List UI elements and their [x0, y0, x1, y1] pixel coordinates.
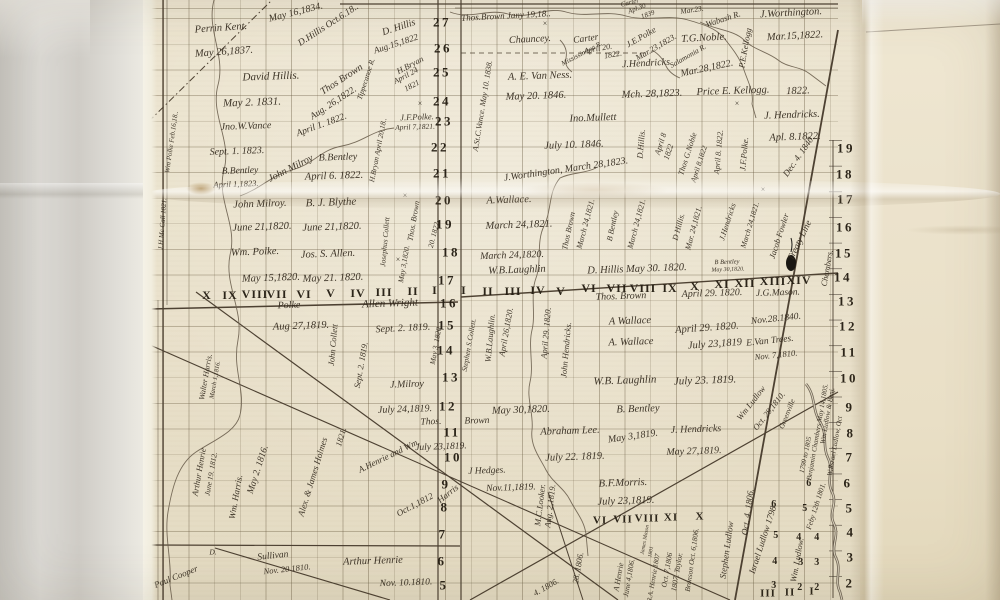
- range-numeral: VII: [266, 288, 287, 300]
- map-label: Abraham Lee.: [540, 426, 600, 439]
- map-label: Israel Ludlow, Oct: [828, 416, 844, 469]
- map-label: J.F.Polke.: [400, 112, 434, 122]
- map-label: H.Bryan April 20,18..: [368, 117, 388, 183]
- grid-number: 25: [433, 66, 451, 79]
- page-margin-band: [0, 0, 143, 600]
- map-label: Stephen S.Collett.: [461, 318, 478, 372]
- range-numeral: X: [696, 512, 705, 523]
- map-label: April 7,1821.: [395, 123, 435, 132]
- map-label: July 10. 1846.: [544, 140, 604, 153]
- map-label: Nov.28.1840.: [751, 313, 802, 328]
- range-numeral: VIII: [630, 282, 657, 294]
- range-numeral: XIII: [760, 275, 787, 287]
- map-label: Mar.23.: [680, 5, 704, 16]
- map-label: May 21. 1820.: [302, 273, 363, 286]
- map-label: May 30,1820.: [492, 405, 550, 418]
- survey-x-mark: ×: [396, 256, 401, 264]
- map-label: 1822: [663, 143, 676, 161]
- map-label: Chauncey.: [509, 34, 551, 46]
- grid-number: 19: [436, 218, 454, 231]
- range-numeral: XI: [714, 278, 729, 290]
- map-label: Oct. 4. 1806.: [740, 488, 755, 536]
- map-label: Aug.15,1822: [373, 33, 420, 56]
- grid-number: 24: [433, 95, 451, 108]
- map-label: April 29. 1820.: [540, 307, 553, 359]
- range-numeral: II: [482, 285, 493, 297]
- range-numeral: XIV: [786, 274, 811, 286]
- grid-number: 2: [814, 583, 822, 593]
- map-label: 4. 1806.: [532, 576, 560, 597]
- map-label: Sept. 1. 1823.: [209, 146, 264, 158]
- map-label: B Bentley: [606, 210, 620, 242]
- map-label: Perrin Kent.: [194, 22, 247, 36]
- map-label: J Hedges.: [468, 467, 506, 478]
- range-numeral: XI: [664, 513, 678, 524]
- map-label: Sept. 2. 1819.: [375, 323, 430, 336]
- range-numeral: VIII: [242, 288, 269, 300]
- map-label: D.: [209, 548, 216, 556]
- range-numeral: VIII: [635, 514, 660, 525]
- map-label: Aug 27,1819.: [273, 321, 330, 333]
- map-label: B.Bentley: [319, 152, 358, 163]
- map-label: March 24,1821.: [485, 220, 552, 233]
- range-numeral: VII: [606, 282, 627, 294]
- top-right-fold-highlight: [862, 0, 1000, 26]
- grid-number: 9: [442, 478, 451, 491]
- range-numeral: VI: [593, 516, 607, 527]
- range-numeral: IX: [222, 289, 237, 301]
- map-label: 1821: [403, 79, 421, 94]
- map-label: Treaty Line: [787, 220, 814, 263]
- grid-number: 12: [439, 400, 457, 413]
- map-label: John Collett: [327, 324, 339, 366]
- map-label: Jos. S. Allen.: [301, 249, 356, 261]
- map-label: Allen Wright: [362, 298, 418, 311]
- map-label: Mch. 28,1823.: [621, 89, 682, 102]
- map-label: J.Worthington.: [760, 7, 822, 21]
- map-label: W.B.Laughlin.: [484, 313, 497, 362]
- survey-x-mark: ×: [418, 100, 423, 108]
- grid-number: 3: [814, 558, 822, 568]
- map-label: June 21,1820.: [302, 222, 362, 235]
- range-numeral: VI: [296, 288, 311, 300]
- grid-number: 14: [437, 344, 455, 357]
- range-numeral: X: [202, 289, 212, 301]
- map-label: Sept. 2. 1819.: [353, 341, 369, 388]
- grid-number: 7: [439, 528, 448, 541]
- page-margin-highlight: [0, 0, 90, 58]
- map-label: May 20. 1846.: [505, 91, 566, 104]
- map-label: J.G.Mason.: [756, 288, 800, 299]
- grid-number: 22: [431, 141, 449, 154]
- map-label: Price E. Kellogg.: [696, 85, 769, 98]
- grid-number: 27: [433, 16, 451, 29]
- grid-number: 16: [440, 297, 458, 310]
- survey-x-mark: ×: [543, 20, 548, 28]
- map-label: W.B.Laughlin: [488, 265, 546, 277]
- range-numeral: III: [760, 589, 776, 600]
- grid-number: 23: [435, 115, 453, 128]
- map-label: Wm. Polke.: [231, 247, 279, 259]
- grid-number: 26: [434, 42, 452, 55]
- grid-number: 5: [802, 504, 810, 514]
- map-label: May 15,1820.: [242, 273, 300, 286]
- map-label: D Hillis.: [672, 213, 687, 242]
- map-label: May 16,1834.: [268, 1, 324, 24]
- grid-number: 5: [440, 579, 449, 592]
- map-label: July 24,1819.: [378, 404, 432, 416]
- grid-number: 8: [441, 501, 450, 514]
- map-label: Alex. & James Holmes: [297, 436, 330, 517]
- map-label: Brown: [464, 417, 489, 427]
- map-label: P.E.Kellogg: [737, 27, 752, 68]
- map-label: Chambers.: [820, 249, 835, 287]
- range-numeral: I: [432, 284, 438, 296]
- map-label: A.St.C.Vance. May 10. 1838.: [472, 60, 494, 152]
- grid-number: 6: [438, 555, 447, 568]
- map-label: A. Wallace: [608, 337, 653, 349]
- map-label: E.Van Trees.: [746, 335, 794, 349]
- grid-number: 13: [442, 371, 460, 384]
- vertical-fold-crease: [850, 0, 884, 600]
- grid-number: 3: [798, 558, 806, 568]
- map-label: B. Bentley: [616, 404, 659, 416]
- map-label: D.Hillis.: [635, 129, 646, 159]
- map-label: John Hendricks.: [559, 322, 572, 378]
- range-numeral: V: [326, 287, 336, 299]
- grid-number: 4: [796, 533, 804, 543]
- map-label: Wm. Harris.: [228, 474, 245, 520]
- map-label: July 23. 1819.: [674, 374, 737, 387]
- range-numeral: IV: [350, 287, 365, 299]
- map-label: Polke: [277, 301, 300, 312]
- map-label: May 2. 1816.: [247, 445, 272, 496]
- map-label: 1822.: [786, 86, 810, 97]
- range-numeral: II: [785, 588, 796, 599]
- grid-number: 4: [772, 557, 780, 567]
- map-label: B Bentley: [714, 259, 739, 266]
- grid-number: 11: [443, 426, 460, 439]
- map-label: May 30,1820.: [711, 266, 744, 273]
- map-label: June 21,1820.: [232, 222, 292, 235]
- grid-number: 18: [442, 246, 460, 259]
- map-label: Nov. 10.1810.: [380, 578, 433, 589]
- map-label: B.Bentley: [222, 167, 259, 178]
- map-label: R.A. Henrie 1807: [646, 553, 661, 600]
- map-label: J. Hendricks: [671, 424, 722, 436]
- page-margin-crease: [0, 183, 143, 199]
- map-label: Bronson Oct. 6,1806.: [684, 528, 700, 593]
- map-label: Mar. 24,1821.: [684, 205, 703, 250]
- map-label: Oct.1,1812: [395, 492, 435, 519]
- map-label: Ino.Mullett: [569, 113, 616, 125]
- map-label: J.H.Mc Call 1821.: [158, 198, 169, 250]
- map-label: Nov. 20 1810.: [263, 562, 311, 575]
- map-label: J.Hendricks: [622, 58, 671, 71]
- map-label: May 3,1819.: [607, 429, 658, 446]
- map-label: April 26,1820.: [498, 307, 515, 357]
- map-label: May 27,1819.: [666, 446, 722, 458]
- map-label: W.P.: [827, 463, 836, 476]
- range-numeral: V: [556, 285, 566, 297]
- map-label: April 29. 1820.: [675, 322, 739, 337]
- paper-stain: [520, 182, 670, 198]
- map-label: Stephen Ludlow: [719, 521, 736, 579]
- map-label: Mar.28,1822.: [680, 59, 735, 80]
- map-label: May 2. 1831.: [223, 96, 281, 109]
- map-label: July 22. 1819.: [545, 452, 605, 465]
- grid-number: 4: [814, 533, 822, 543]
- grid-number: 2: [797, 583, 805, 593]
- map-label: A.Henrie and Wm.: [357, 437, 421, 474]
- range-numeral: I: [461, 284, 467, 296]
- survey-x-mark: ×: [735, 100, 740, 108]
- map-label: Josephus Collett: [379, 217, 391, 267]
- range-numeral: VII: [613, 515, 633, 526]
- map-label: J.Milroy: [390, 379, 424, 390]
- map-label: Wm Polke Feb.16,18..: [164, 111, 180, 174]
- grid-number: 17: [438, 274, 456, 287]
- grid-number: 15: [438, 319, 456, 332]
- range-numeral: X: [690, 280, 700, 292]
- map-label: 1839: [640, 9, 656, 20]
- range-numeral: III: [504, 285, 521, 297]
- map-label: Jno.W.Vance: [220, 121, 271, 133]
- map-label: A Wallace: [609, 316, 652, 328]
- map-label: July 23,1819: [688, 338, 743, 352]
- map-label: Sullivan: [257, 551, 289, 564]
- map-label: July 23,1819.: [597, 496, 654, 508]
- map-label: B.F.Morris.: [599, 478, 648, 490]
- map-label: Thos.: [420, 418, 441, 428]
- map-label: Paul Cooper: [153, 564, 199, 590]
- map-label: 1822.: [603, 49, 622, 60]
- range-numeral: VI: [581, 282, 596, 294]
- map-label: Wabash R.: [705, 9, 742, 28]
- map-label: Thos.Brown Jany 19,18..: [461, 9, 551, 23]
- range-numeral: III: [375, 286, 392, 298]
- map-label: April 8. 1822.: [713, 130, 725, 175]
- grid-number: 10: [444, 451, 462, 464]
- map-label: W.B. Laughlin: [593, 374, 656, 387]
- range-numeral: I: [809, 587, 814, 598]
- map-label: Jacob Fowler: [768, 212, 791, 259]
- map-label: 28. 1806.: [571, 552, 585, 585]
- range-numeral: XII: [734, 277, 755, 289]
- range-numeral: IX: [662, 282, 677, 294]
- map-label: David Hillis.: [242, 71, 299, 84]
- map-label: Nov. 7,1810.: [754, 349, 797, 362]
- map-label: J.F.Polke.: [738, 137, 749, 171]
- map-label: Nov.11,1819.: [486, 483, 536, 494]
- grid-number: 5: [773, 531, 781, 541]
- map-label: J. Hendricks.: [764, 110, 820, 122]
- map-label: D. Hillis May 30. 1820.: [587, 263, 687, 277]
- map-sheet-edge: [143, 0, 157, 600]
- grid-number: 6: [806, 479, 814, 489]
- map-label: May 26,1837.: [195, 46, 254, 61]
- scanned-plat-map: May 16,1834.Perrin Kent.D.Hillis Oct.6.1…: [0, 0, 1000, 600]
- map-label: March 24,1820.: [480, 250, 544, 262]
- grid-number: 21: [433, 167, 451, 180]
- map-label: A. E. Van Ness.: [508, 71, 572, 84]
- map-label: May 3,1820.: [397, 245, 411, 283]
- map-label: Arthur Henrie: [343, 556, 403, 569]
- grid-number: 6: [771, 500, 779, 510]
- range-numeral: II: [407, 285, 418, 297]
- paper-stain: [186, 182, 216, 195]
- map-label: 1821.: [334, 427, 348, 448]
- map-label: Mar.15,1822.: [767, 30, 824, 43]
- range-numeral: IV: [530, 284, 545, 296]
